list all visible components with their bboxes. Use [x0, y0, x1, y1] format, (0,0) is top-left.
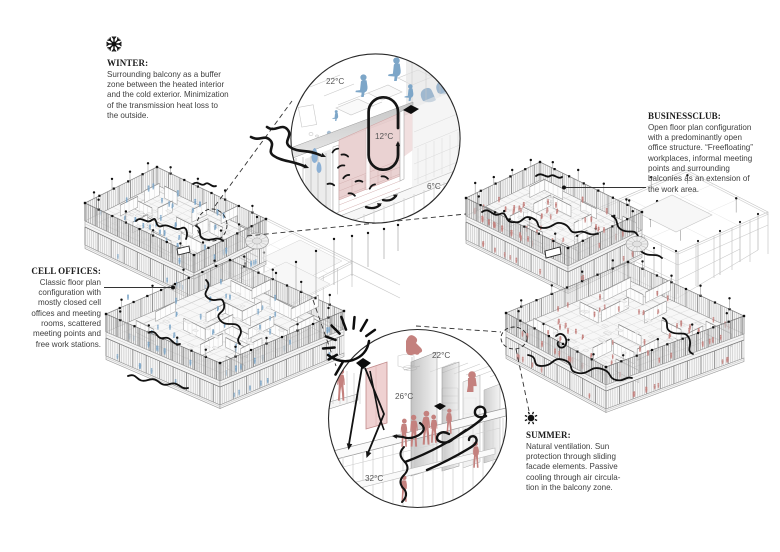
svg-text:26°C: 26°C	[395, 392, 413, 401]
svg-text:22°C: 22°C	[432, 351, 450, 360]
svg-text:32°C: 32°C	[365, 474, 383, 483]
svg-text:12°C: 12°C	[375, 132, 393, 141]
svg-text:22°C: 22°C	[326, 77, 344, 86]
svg-text:6°C: 6°C	[427, 182, 441, 191]
